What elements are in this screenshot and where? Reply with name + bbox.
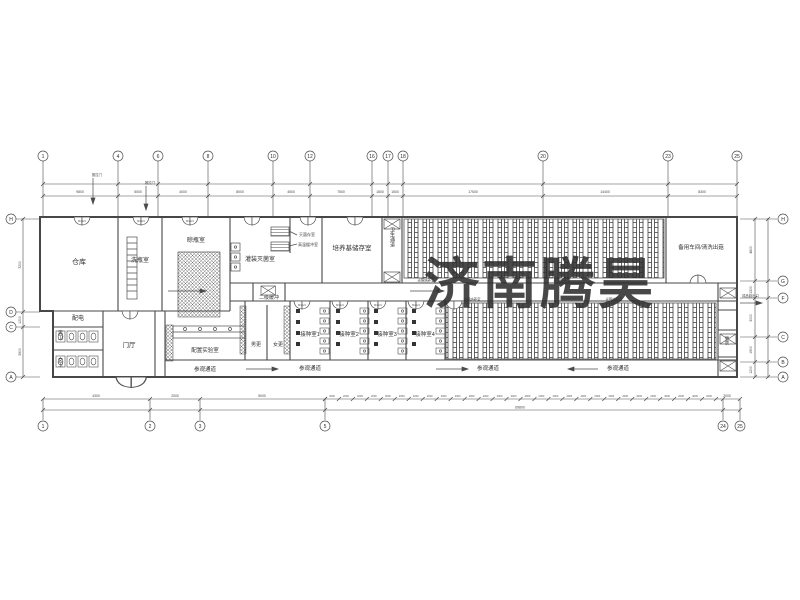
autoclave-2 — [271, 242, 289, 251]
grid-bubble-label: C — [781, 335, 785, 341]
room-label: 灌装灭菌室 — [245, 255, 275, 263]
room-label: 培养基储存室 — [333, 243, 373, 252]
air-shower — [166, 325, 173, 361]
corridor-label: 参观通道 — [477, 364, 500, 372]
grid-bubble-label: 8 — [207, 154, 210, 160]
door-tag: M1521 — [412, 303, 420, 307]
room-label: 门厅 — [123, 340, 137, 349]
dim-label: 2000 — [650, 394, 656, 398]
grid-bubble-label: 5 — [324, 424, 327, 430]
room-label: 洗瓶室 — [131, 256, 149, 264]
room-label: 接种室3 — [377, 330, 397, 338]
grid-bubble-label: 4 — [117, 154, 120, 160]
toilet-stall — [78, 356, 87, 367]
grid-bubble-label: 24 — [720, 424, 726, 430]
toilet-stall — [89, 331, 98, 342]
dim-label: 4800 — [749, 246, 753, 254]
dim-label: 2000 — [371, 394, 377, 398]
air-shower — [240, 306, 246, 354]
room-label: 更衣 — [724, 336, 730, 347]
room-label: 女卫 — [57, 356, 63, 367]
dim-label: 4000 — [692, 394, 698, 398]
dim-label: 2000 — [511, 394, 517, 398]
dim-label: 2000 — [723, 394, 731, 398]
grid-bubble-label: B — [781, 360, 785, 366]
grid-bubble-label: H — [781, 217, 785, 223]
air-shower — [284, 306, 290, 354]
dim-label: 2000 — [594, 394, 600, 398]
room-label: 配置实验室 — [191, 346, 219, 354]
door-tag: M1521 — [336, 303, 344, 307]
corridor-label: 参观通道 — [194, 365, 217, 373]
grid-bubble-label: 25 — [734, 154, 740, 160]
room-label: 二级缓冲 — [259, 294, 279, 301]
grid-bubble-label: 3 — [199, 424, 202, 430]
dim-label: 4500 — [287, 190, 295, 194]
door-symbol — [244, 217, 260, 225]
dim-label: 1200 — [18, 316, 22, 324]
dim-label: 4000 — [525, 394, 531, 398]
autoclave-1 — [271, 227, 289, 236]
dim-label: 2000 — [483, 394, 489, 398]
door-symbol — [122, 311, 138, 319]
dim-label: 2000 — [427, 394, 433, 398]
dim-label: 1200 — [749, 366, 753, 374]
dim-label: 4000 — [553, 394, 559, 398]
room-label: 接种室2 — [339, 330, 359, 338]
grid-bubble-label: A — [781, 375, 785, 381]
room-label: 高温缓冲室 — [298, 241, 318, 247]
room-label: 接种室4 — [415, 330, 435, 338]
door-tag: M1521 — [186, 219, 194, 223]
grid-bubble-label: A — [9, 375, 13, 381]
grid-bubble-label: D — [9, 310, 13, 316]
grid-bubble-label: 17 — [385, 154, 391, 160]
dim-label: 2000 — [566, 394, 572, 398]
dim-label: 1500 — [391, 190, 399, 194]
grid-bubble-label: F — [781, 296, 784, 302]
grid-bubble-label: 10 — [270, 154, 276, 160]
dim-label: 4000 — [329, 394, 335, 398]
room-label: 灭菌存室 — [299, 231, 315, 237]
dim-label: 17500 — [468, 190, 478, 194]
air-lock-door — [261, 286, 275, 295]
grid-bubble-label: 1 — [42, 424, 45, 430]
dim-label: 2000 — [539, 394, 545, 398]
grid-bubble-label: 16 — [369, 154, 375, 160]
grid-bubble-label: 18 — [400, 154, 406, 160]
room-label: 男更 — [251, 342, 261, 348]
corridor-label: 参观通道 — [299, 364, 322, 372]
room-label: 卫生通道 — [389, 227, 395, 248]
dim-label: 5000 — [134, 190, 142, 194]
air-lock-door — [720, 288, 736, 298]
toilet-stall — [89, 356, 98, 367]
grid-bubble-label: 25 — [737, 424, 743, 430]
floor-plan-page: 仓库 洗瓶室 晾瓶室 灌装灭菌室 灭菌存室 高温缓冲室 培养基储存室 卫生通道 … — [0, 0, 800, 600]
watermark: 济南腾昊 — [424, 253, 656, 315]
room-label: 男卫 — [57, 330, 63, 340]
dim-label: 14400 — [600, 190, 610, 194]
dim-label: 4000 — [441, 394, 447, 398]
entrance-door — [116, 377, 146, 387]
grid-bubble-label: H — [9, 217, 13, 223]
dim-total-label: 69800 — [515, 406, 525, 410]
door-tag: M1521 — [298, 303, 306, 307]
dim-label: 4000 — [636, 394, 642, 398]
door-label: 推拉门 — [92, 172, 103, 177]
door-tag: M1521 — [137, 219, 145, 223]
dim-label: 9800 — [76, 190, 84, 194]
dim-label: 3900 — [18, 348, 22, 356]
grid-bubble-label: 1 — [42, 154, 45, 160]
conveyor-strip — [178, 311, 220, 317]
dim-label: 2000 — [455, 394, 461, 398]
door-symbol — [300, 217, 316, 225]
crate-stack — [178, 252, 220, 311]
dim-label: 4000 — [357, 394, 363, 398]
dim-label: 4000 — [469, 394, 475, 398]
dim-label: 7200 — [18, 261, 22, 269]
dim-label: 1900 — [749, 346, 753, 354]
grid-bubble-label: 20 — [540, 154, 546, 160]
dim-label: 2000 — [706, 394, 712, 398]
dim-label: 2000 — [622, 394, 628, 398]
dim-label: 2000 — [399, 394, 405, 398]
door-symbol — [347, 217, 363, 225]
air-lock-door — [384, 272, 400, 282]
toilet-stall — [67, 356, 76, 367]
dim-label: 4000 — [179, 190, 187, 194]
bottle-conveyor — [127, 237, 137, 299]
dim-label: 2000 — [678, 394, 684, 398]
room-label: 备用车间/清洗出菇 — [678, 243, 724, 251]
toilet-stall — [78, 331, 87, 342]
door-tag: M1521 — [78, 219, 86, 223]
dim-label: 5000 — [258, 394, 266, 398]
grid-bubble-label: 23 — [665, 154, 671, 160]
room-label: 配电 — [72, 314, 84, 322]
dim-label: 4000 — [664, 394, 670, 398]
grid-bubble-label: 2 — [149, 424, 152, 430]
grid-bubble-label: C — [9, 325, 13, 331]
door-tag: M1521 — [374, 303, 382, 307]
room-label: 仓库 — [72, 257, 86, 266]
toilet-stall — [67, 331, 76, 342]
inoculation-equipment — [296, 308, 329, 354]
door-label: 推拉门 — [145, 180, 156, 185]
dim-label: 8300 — [698, 190, 706, 194]
room-label: 接种室1 — [300, 330, 320, 338]
dim-label: 4300 — [92, 394, 100, 398]
dim-label: 4000 — [385, 394, 391, 398]
room-label: 晾瓶室 — [187, 236, 205, 244]
dim-label: 3000 — [749, 314, 753, 322]
dim-label: 1800 — [376, 190, 384, 194]
dim-label: 2000 — [343, 394, 349, 398]
corridor-label: 参观通道 — [607, 364, 630, 372]
inoculation-equipment — [336, 308, 369, 354]
room-label: 女更 — [273, 341, 283, 348]
dim-label: 4000 — [580, 394, 586, 398]
dim-label: 8000 — [236, 190, 244, 194]
inoculation-equipment — [374, 308, 407, 354]
grid-bubble-label: 6 — [157, 154, 160, 160]
grid-bubble-label: G — [781, 279, 785, 285]
generated-grid-and-dims: 1468101216171820232512352425HDCAHGFCBA98… — [6, 151, 788, 431]
dim-label: 7500 — [337, 190, 345, 194]
air-lock-door — [720, 361, 736, 371]
dim-label: 4000 — [497, 394, 503, 398]
door-symbol — [690, 275, 706, 283]
dim-label: 2000 — [171, 394, 179, 398]
grid-bubble-label: 12 — [307, 154, 313, 160]
dim-label: 1300 — [749, 286, 753, 294]
floor-plan-svg: 仓库 洗瓶室 晾瓶室 灌装灭菌室 灭菌存室 高温缓冲室 培养基储存室 卫生通道 … — [0, 0, 800, 600]
dim-label: 4000 — [413, 394, 419, 398]
dim-label: 4000 — [608, 394, 614, 398]
